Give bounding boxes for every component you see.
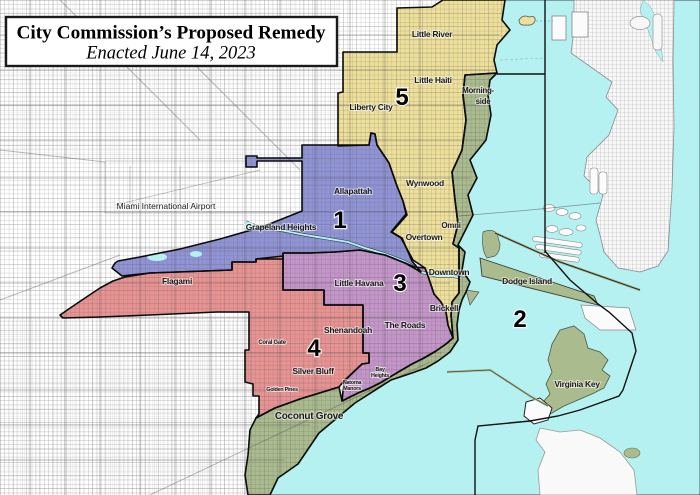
svg-text:Dodge Island: Dodge Island — [502, 276, 552, 286]
svg-text:Little Havana: Little Havana — [334, 278, 384, 288]
svg-text:Manors: Manors — [343, 386, 361, 392]
svg-text:Allapattah: Allapattah — [334, 186, 372, 196]
svg-text:side: side — [476, 97, 492, 106]
svg-text:Flagami: Flagami — [162, 276, 192, 286]
svg-text:Golden Pines: Golden Pines — [266, 387, 298, 393]
svg-text:Shenandoah: Shenandoah — [324, 325, 372, 335]
svg-text:Miami International Airport: Miami International Airport — [117, 201, 216, 211]
svg-text:Little River: Little River — [412, 29, 453, 39]
svg-text:Grapeland Heights: Grapeland Heights — [246, 222, 317, 232]
svg-text:The Roads: The Roads — [385, 320, 426, 330]
svg-text:Liberty City: Liberty City — [349, 102, 393, 112]
svg-text:2: 2 — [513, 306, 526, 333]
svg-text:1: 1 — [333, 207, 346, 234]
svg-text:Brickell: Brickell — [430, 303, 458, 313]
svg-text:3: 3 — [393, 270, 406, 297]
svg-text:Virginia Key: Virginia Key — [554, 379, 600, 389]
svg-text:Heights: Heights — [371, 373, 389, 379]
svg-text:Downtown: Downtown — [429, 267, 470, 277]
svg-text:5: 5 — [395, 84, 408, 111]
svg-text:4: 4 — [307, 335, 321, 362]
svg-text:Coral Gate: Coral Gate — [258, 340, 286, 346]
svg-text:Overtown: Overtown — [406, 232, 443, 242]
svg-text:Silver Bluff: Silver Bluff — [292, 366, 334, 376]
svg-text:Morning-: Morning- — [462, 86, 494, 95]
svg-text:Enacted June 14, 2023: Enacted June 14, 2023 — [85, 44, 256, 64]
svg-text:Omni: Omni — [441, 221, 460, 230]
svg-text:City Commission’s Proposed Rem: City Commission’s Proposed Remedy — [16, 23, 325, 44]
svg-text:Wynwood: Wynwood — [406, 178, 444, 188]
svg-text:Coconut Grove: Coconut Grove — [275, 411, 344, 422]
svg-text:Little Haiti: Little Haiti — [414, 75, 452, 85]
